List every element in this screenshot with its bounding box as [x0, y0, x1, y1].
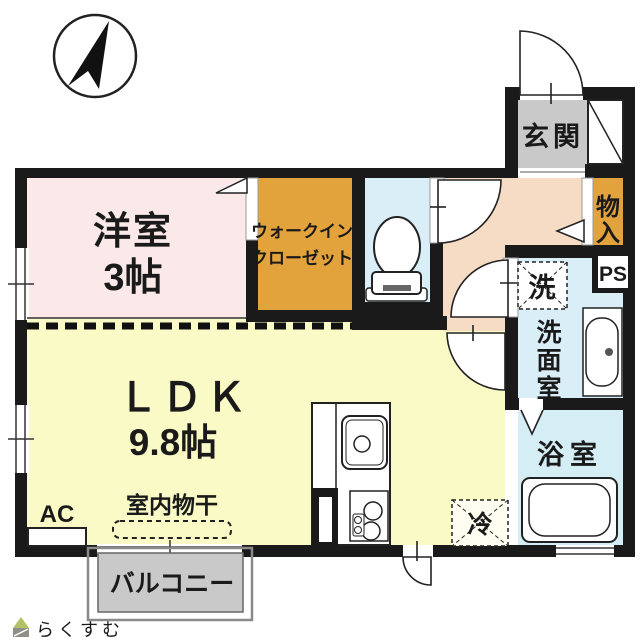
- wall-entrance-top-right: [583, 87, 635, 100]
- bathroom-window-gap: [556, 545, 614, 557]
- toilet-bowl: [374, 217, 420, 277]
- watermark-text: らくすむ: [36, 620, 124, 640]
- bathroom-label: 浴室: [537, 439, 603, 470]
- wall-wic-toilet: [352, 168, 365, 316]
- washroom-label-char3: 室: [536, 374, 561, 403]
- balcony: バルコニー: [88, 548, 252, 620]
- wall-washroom-left: [505, 317, 518, 408]
- compass-icon: [54, 15, 136, 97]
- watermark-logo-roof: [13, 617, 29, 628]
- washroom-label-char2: 面: [536, 347, 561, 375]
- ac-box: [28, 528, 86, 546]
- entrance-label: 玄関: [522, 121, 584, 152]
- ldk-floor: [27, 318, 505, 545]
- wall-right: [623, 87, 635, 557]
- storage-label-char2: 入: [596, 220, 620, 247]
- wall-toilet-bottom: [352, 302, 443, 316]
- floor-plan: PS 洗: [0, 0, 640, 640]
- watermark: らくすむ: [13, 617, 124, 640]
- storage-label-char1: 物: [596, 194, 620, 221]
- wall-entrance-top-left: [505, 87, 520, 100]
- wall-top: [15, 168, 518, 178]
- shoe-cabinet: [588, 100, 623, 164]
- pipe-space: PS: [592, 251, 635, 293]
- kitchen-unit: [312, 403, 390, 548]
- indoor-drying-label: 室内物干: [126, 492, 218, 518]
- wall-entrance-left: [505, 100, 518, 178]
- wall-hallway-ldk: [352, 316, 447, 330]
- pipe-space-label: PS: [599, 263, 627, 286]
- vanity-drain: [605, 348, 613, 356]
- kitchen-door-gap: [403, 545, 433, 557]
- wic-label-line1: ウォークイン: [251, 222, 353, 241]
- stove-knob-panel: [353, 514, 364, 536]
- wall-left: [15, 168, 27, 557]
- refrigerator-label: 冷: [467, 510, 492, 539]
- vanity-sink: [583, 308, 622, 396]
- toilet-lid-detail: [383, 285, 411, 291]
- vanity-basin: [586, 318, 618, 386]
- wic-label-line2: クローゼット: [251, 248, 353, 268]
- washing-machine: 洗: [518, 262, 567, 309]
- balcony-label: バルコニー: [110, 570, 235, 598]
- walk-in-closet-floor: [258, 178, 352, 310]
- kitchen-sink-inner: [346, 420, 383, 465]
- kitchen-wall-stub-slot: [319, 497, 332, 542]
- refrigerator-space: 冷: [452, 500, 508, 546]
- ldk-label: ＬＤＫ: [118, 376, 250, 420]
- bathtub: [522, 478, 617, 542]
- ac-label: AC: [40, 501, 75, 528]
- western-room-size: 3帖: [103, 257, 162, 299]
- washing-machine-label: 洗: [529, 273, 556, 303]
- ldk-size: 9.8帖: [129, 422, 217, 463]
- wall-toilet-right: [430, 243, 443, 316]
- floor-plan-drawing: PS 洗: [0, 0, 640, 640]
- western-room-label: 洋室: [93, 210, 173, 253]
- kitchen-back-door-swing: [403, 557, 431, 585]
- washroom-label-char1: 洗: [536, 319, 561, 347]
- bathtub-inner: [529, 484, 610, 536]
- wall-wic-bottom: [246, 310, 352, 322]
- wall-under-shoebox: [585, 164, 635, 178]
